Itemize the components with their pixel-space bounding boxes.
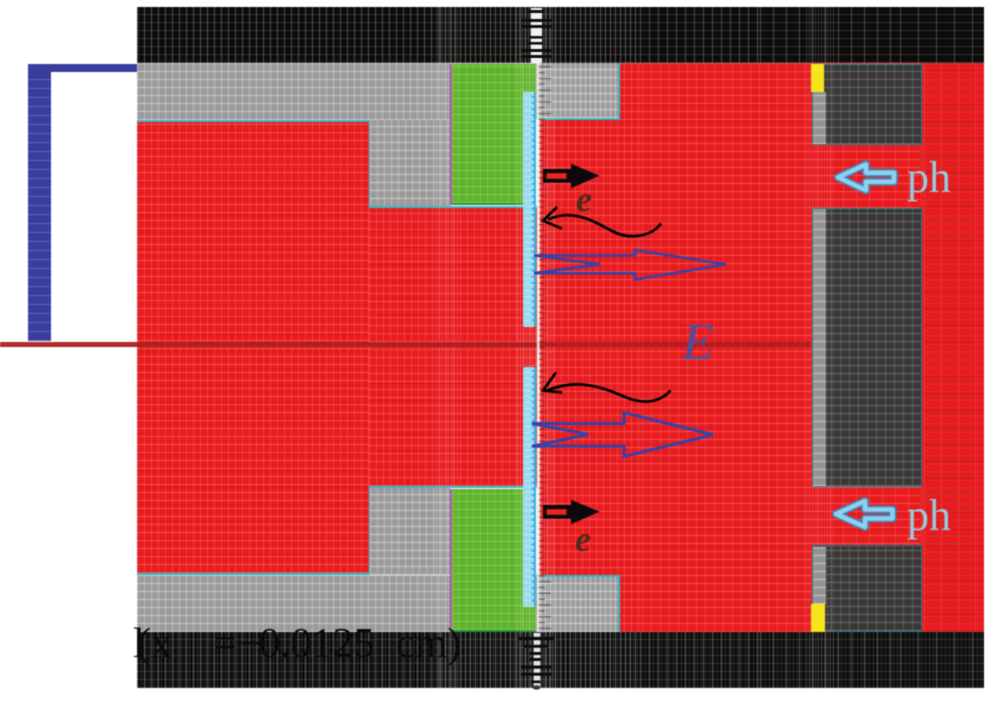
svg-text:ph: ph xyxy=(907,491,951,540)
svg-text:e: e xyxy=(576,179,592,219)
svg-text:E: E xyxy=(681,314,714,371)
svg-text:(x: (x xyxy=(137,621,172,667)
svg-text:=: = xyxy=(213,621,237,667)
svg-text:cm): cm) xyxy=(396,621,461,667)
svg-text:e: e xyxy=(575,519,591,559)
svg-text:ph: ph xyxy=(907,153,951,202)
svg-text:0.0125: 0.0125 xyxy=(259,621,375,667)
